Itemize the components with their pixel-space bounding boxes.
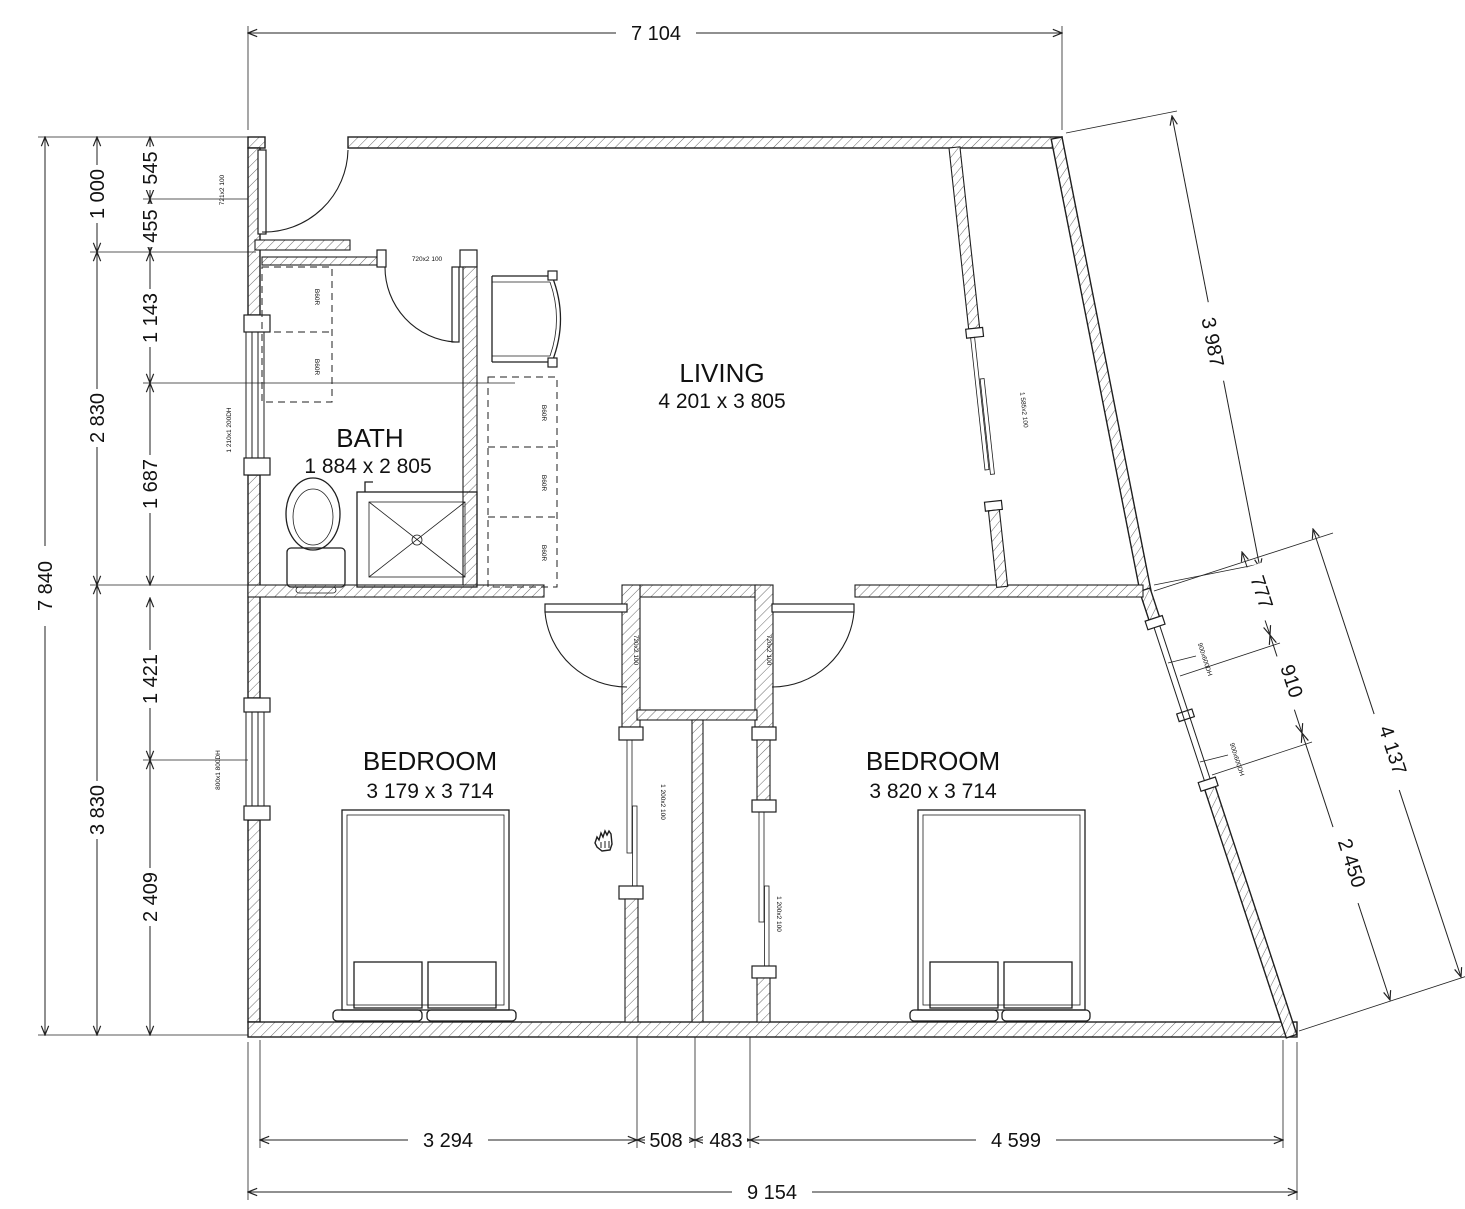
robe-divider-wall [692, 720, 703, 1022]
entry-wall-nib [255, 240, 350, 250]
slant-window-glass-2 [1154, 628, 1204, 781]
shower-tap-icon [365, 482, 373, 492]
bedroom2-door-swing [772, 612, 854, 687]
robe2-slider-panel-a [759, 812, 764, 922]
living-armchair-icon [492, 271, 561, 367]
dim-left-1000: 1 000 [87, 169, 109, 219]
slant-window-mullion [1177, 709, 1195, 722]
wall-slant-upper [1051, 137, 1151, 592]
slant-window-tag-2: 900x600DH [1228, 742, 1245, 777]
dim-slant-777: 777 [1245, 573, 1276, 612]
living-cabinet-label-1: B60R [540, 405, 547, 422]
robe1-jamb-cap [619, 886, 643, 899]
bedroom1-bed-icon [333, 810, 516, 1021]
dim-left-2409: 2 409 [140, 872, 162, 922]
bedroom1-east-wall-lower [625, 899, 638, 1022]
robe2-jamb-cap-top [752, 800, 776, 812]
bedroom1-door-swing [545, 612, 627, 687]
floorplan-drawing: B60R B60R B60R B60R B60R LIVING 4 201 x … [0, 0, 1465, 1209]
dim-bottom-total: 9 154 [747, 1182, 797, 1204]
alcove-jamb-right-cap [752, 727, 776, 740]
bath-window-cap-bottom [244, 458, 270, 475]
dim-left-1687: 1 687 [140, 459, 162, 509]
dim-bottom: 3 294 508 483 4 599 9 154 [248, 1037, 1297, 1204]
dim-slant-910: 910 [1275, 662, 1306, 701]
slant-window-leader-1 [1168, 656, 1196, 663]
bedroom1-door-leaf [545, 604, 627, 612]
bedroom1-window-tag: 800x1 800DH [215, 750, 222, 790]
mid-wall-center [640, 585, 757, 597]
bath-size: 1 884 x 2 805 [304, 455, 431, 478]
living-slider-panel-b [980, 379, 994, 475]
dim-bottom-483: 483 [709, 1130, 742, 1152]
dim-left-545: 545 [140, 151, 162, 184]
robe1-slider-panel-a [627, 740, 632, 853]
bath-cabinet-label-1: B60R [313, 289, 320, 306]
bedroom2-west-wall-upper [757, 740, 770, 800]
living-partition-upper [949, 147, 980, 329]
shower-icon [357, 482, 477, 587]
living-slider-tag: 1 585x2 100 [1018, 392, 1029, 429]
bath-door-jamb-right [460, 250, 477, 267]
dim-bottom-4599: 4 599 [991, 1130, 1041, 1152]
dim-left-1421: 1 421 [140, 654, 162, 704]
entry-door-swing [262, 150, 348, 232]
living-cabinet: B60R B60R B60R [488, 377, 557, 587]
wall-left-lower [248, 820, 260, 1022]
robe1-slider-tag: 1 200x2 100 [659, 784, 666, 820]
robe1-slider-panel-b [633, 806, 638, 886]
bath-door-leaf [452, 267, 459, 342]
dim-left-3830: 3 830 [87, 785, 109, 835]
living-slider-panel-a [971, 337, 989, 470]
dim-right-slant: 3 987 777 910 2 450 4 137 [1066, 111, 1465, 1031]
hand-cursor-icon [595, 831, 612, 851]
bedroom2-door-tag: 720x2 100 [765, 635, 772, 666]
floorplan-canvas[interactable]: B60R B60R B60R B60R B60R LIVING 4 201 x … [0, 0, 1465, 1209]
slant-window-tag-1: 900x600DH [1196, 642, 1213, 677]
wall-slant-lower [1136, 587, 1300, 1039]
living-partition-cap-a [966, 327, 984, 338]
bedroom1-door-tag: 720x2 100 [632, 635, 639, 666]
living-slant-partition [946, 146, 1011, 587]
wall-slant-lower-b [1205, 787, 1297, 1038]
entry-door-tag: 721x2 100 [219, 174, 226, 205]
dim-left-total: 7 840 [35, 561, 57, 611]
bedroom1-label: BEDROOM [363, 746, 497, 776]
dim-bottom-508: 508 [649, 1130, 682, 1152]
living-size: 4 201 x 3 805 [658, 390, 785, 413]
bedroom1-size: 3 179 x 3 714 [366, 780, 494, 803]
bedroom1-window-cap-top [244, 698, 270, 712]
dim-slant-3987: 3 987 [1196, 316, 1227, 369]
bath-cabinet-label-2: B60R [313, 359, 320, 376]
dim-left-1143: 1 143 [140, 293, 162, 343]
entry-door-leaf [258, 150, 266, 234]
bedroom1-window [244, 698, 270, 820]
bath-window-cap-top [244, 315, 270, 332]
living-partition-lower [988, 510, 1007, 588]
dim-bottom-3294: 3 294 [423, 1130, 473, 1152]
bath-window [244, 315, 270, 475]
interior-walls [248, 146, 1143, 1022]
bedroom2-bed-icon [910, 810, 1090, 1021]
slant-window-leader-2 [1200, 755, 1228, 762]
dim-left-455: 455 [140, 209, 162, 242]
bath-label: BATH [336, 423, 403, 453]
bedroom2-west-wall-lower [757, 978, 770, 1022]
bedroom1-window-cap-bottom [244, 806, 270, 820]
wall-top-stub [248, 137, 265, 148]
bath-door-jamb-left [377, 250, 386, 267]
bedroom2-label: BEDROOM [866, 746, 1000, 776]
alcove-jamb-left-cap [619, 727, 643, 740]
alcove-back-wall [637, 710, 757, 720]
wall-bottom [248, 1022, 1297, 1037]
living-cabinet-label-2: B60R [540, 475, 547, 492]
bath-door-tag: 720x2 100 [412, 256, 443, 263]
dim-left-2830: 2 830 [87, 393, 109, 443]
dim-top: 7 104 [248, 20, 1062, 130]
bath-north-wall [262, 257, 385, 265]
robe2-slider-tag: 1 200x2 100 [775, 896, 782, 932]
bedroom2-door-leaf [772, 604, 854, 612]
wall-top [348, 137, 1062, 148]
bath-cabinet: B60R B60R [262, 267, 332, 402]
robe2-slider-panel-b [765, 886, 770, 966]
bath-door-swing [385, 267, 455, 342]
bath-window-tag: 1 210x1 200DH [226, 407, 233, 452]
dim-top-value: 7 104 [631, 23, 681, 45]
bedroom2-size: 3 820 x 3 714 [869, 780, 997, 803]
robe2-jamb-cap-bottom [752, 966, 776, 978]
living-label: LIVING [679, 358, 764, 388]
living-cabinet-label-3: B60R [540, 545, 547, 562]
toilet-icon [286, 478, 345, 593]
